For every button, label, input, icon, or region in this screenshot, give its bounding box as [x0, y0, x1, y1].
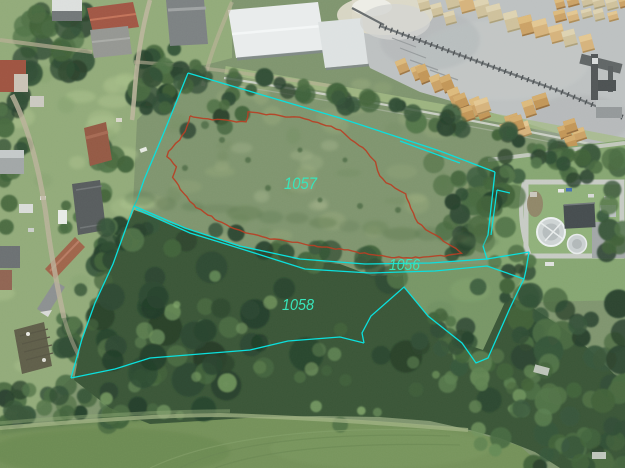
svg-text:1058: 1058	[282, 297, 314, 314]
svg-text:1057: 1057	[284, 174, 317, 193]
svg-text:1056: 1056	[389, 257, 420, 274]
